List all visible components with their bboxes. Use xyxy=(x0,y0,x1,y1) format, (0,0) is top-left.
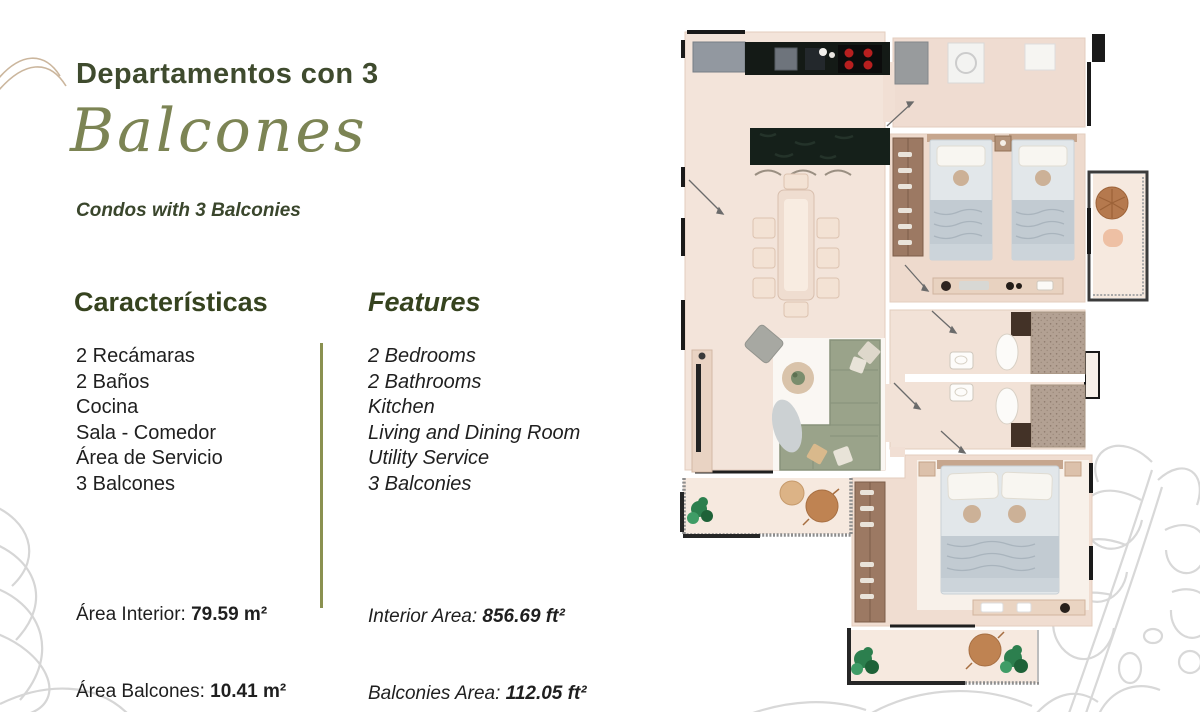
title-script: Balcones xyxy=(70,96,368,166)
vanity xyxy=(1011,423,1031,447)
info-panel: Departamentos con 3 Balcones Condos with… xyxy=(0,0,660,712)
washer xyxy=(948,43,984,83)
toilet xyxy=(950,384,973,401)
floor-plan xyxy=(665,22,1170,712)
area-line: Área Balcones: 10.41 m² xyxy=(76,679,286,705)
features-list: 2 Bedrooms 2 Bathrooms Kitchen Living an… xyxy=(368,344,580,497)
characteristics-header: Características xyxy=(74,287,268,318)
fridge xyxy=(693,42,745,72)
areas-metric: Área Interior: 79.59 m² Área Balcones: 1… xyxy=(76,551,286,712)
list-item: 3 Balconies xyxy=(368,472,580,498)
list-item: Kitchen xyxy=(368,395,580,421)
tv xyxy=(696,364,701,452)
pillow xyxy=(948,472,999,500)
list-item: Utility Service xyxy=(368,446,580,472)
bathroom-window-niche xyxy=(1085,352,1099,398)
balcony-chair xyxy=(1103,229,1123,247)
twin-bed-2 xyxy=(1012,140,1074,260)
list-item: Cocina xyxy=(76,395,223,421)
vanity xyxy=(1011,312,1031,336)
list-item: 2 Baños xyxy=(76,370,223,396)
list-item: 3 Balcones xyxy=(76,472,223,498)
balcony-table xyxy=(780,481,804,505)
shower xyxy=(1031,385,1085,447)
shower xyxy=(1031,312,1085,374)
page-title: Departamentos con 3 xyxy=(76,58,379,91)
column-divider xyxy=(320,343,323,608)
balcony-table xyxy=(806,490,838,522)
areas-imperial: Interior Area: 856.69 ft² Balconies Area… xyxy=(368,553,587,712)
list-item: 2 Bathrooms xyxy=(368,370,580,396)
area-line: Balconies Area: 112.05 ft² xyxy=(368,681,587,707)
sink xyxy=(775,48,797,70)
toilet xyxy=(950,352,973,369)
brochure-page: Departamentos con 3 Balcones Condos with… xyxy=(0,0,1200,712)
characteristics-list: 2 Recámaras 2 Baños Cocina Sala - Comedo… xyxy=(76,344,223,497)
master-passage xyxy=(890,447,905,457)
area-line: Interior Area: 856.69 ft² xyxy=(368,604,587,630)
subtitle: Condos with 3 Balconies xyxy=(76,200,301,222)
tv-console xyxy=(692,350,712,472)
pillow xyxy=(1002,472,1053,500)
list-item: 2 Recámaras xyxy=(76,344,223,370)
balcony-table xyxy=(969,634,1001,666)
kitchen-island xyxy=(750,128,890,165)
nightstand xyxy=(919,462,935,476)
utility-cabinet xyxy=(895,42,928,84)
plant-pot xyxy=(791,371,805,385)
list-item: Área de Servicio xyxy=(76,446,223,472)
nightstand xyxy=(1065,462,1081,476)
list-item: Sala - Comedor xyxy=(76,421,223,447)
dryer xyxy=(1025,44,1055,70)
features-header: Features xyxy=(368,287,481,318)
cooktop xyxy=(838,45,882,73)
bathtub-sink xyxy=(996,334,1018,370)
area-line: Área Interior: 79.59 m² xyxy=(76,602,286,628)
bathtub-sink xyxy=(996,388,1018,424)
bathroom-wall xyxy=(905,374,1085,382)
list-item: Living and Dining Room xyxy=(368,421,580,447)
list-item: 2 Bedrooms xyxy=(368,344,580,370)
twin-bed-1 xyxy=(930,140,992,260)
